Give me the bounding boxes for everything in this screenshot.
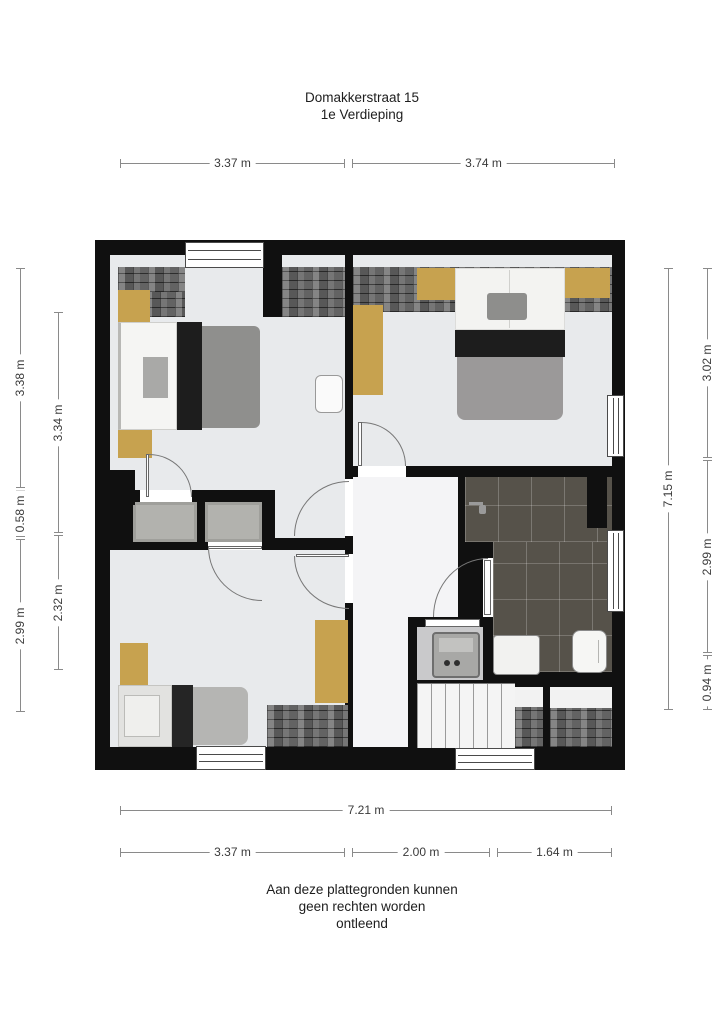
dim-left-outer-3: 2.99 m [20,539,21,712]
landing-strip-2 [550,687,612,708]
wall-chunk-bathroom-ne [587,470,607,528]
wall-chunk-west-mid [110,470,135,505]
dim-right-outer-3: 0.94 m [707,655,708,710]
washbasin [493,635,540,675]
landing-strip-1 [515,687,543,707]
bedroom-1-bed-duvet [202,326,260,428]
stairwell-window [455,748,535,770]
bedroom-3-wardrobe-east [315,620,348,703]
bedroom-2-wardrobe-north-left [417,268,455,300]
bedroom-1-brick-nw2 [145,292,185,317]
wall-chunk-bedroom1-ne [263,240,282,317]
knee-wall-brick-1 [515,707,543,747]
bedroom-1-bed-darkband [177,322,202,430]
knee-wall-brick-2 [550,708,612,747]
washing-machine-panel [439,638,473,652]
bedroom-2-door-opening [358,466,406,477]
dim-top-left: 3.37 m [120,163,345,164]
built-in-cupboard-right [205,502,262,542]
toilet [572,630,607,673]
bedroom-2-window [607,395,624,457]
hall-floor-lower [353,617,408,747]
toilet-seat-line [598,640,599,663]
dim-left-outer-1: 3.38 m [20,268,21,488]
bedroom-2-bed-duvet [457,357,563,420]
floorplan-drawing [95,240,625,770]
disclaimer-line-1: Aan deze plattegronden kunnen [0,881,724,898]
bedroom-3-wardrobe-west [120,643,148,685]
bedroom-1-window [185,242,264,268]
bedroom-1-brick-ne [282,267,345,317]
bathroom-window [607,530,624,612]
page-title-address: Domakkerstraat 15 [0,89,724,106]
staircase [417,683,515,748]
bedroom-2-wardrobe-north-right [562,268,610,298]
dim-bottom-1: 3.37 m [120,852,345,853]
bedroom-1-radiator [315,375,343,413]
dim-right-outer-1: 3.02 m [707,268,708,458]
bedroom-1-bed-blanket [143,357,168,398]
bedroom-1-brick-nw [118,267,185,292]
bedroom-2-gray-pillow [487,293,527,320]
dim-left-inner-1: 3.34 m [58,312,59,533]
dim-left-outer-2: 0.58 m [20,490,21,537]
disclaimer-line-2: geen rechten worden [0,898,724,915]
shower-head-icon [479,505,486,514]
dim-right-total: 7.15 m [668,268,669,710]
floorplan-page: Domakkerstraat 15 1e Verdieping 3.37 m 3… [0,0,724,1024]
built-in-cupboard-left [133,502,197,542]
dim-left-inner-2: 2.32 m [58,535,59,670]
bedroom-2-bed-darkband [455,330,565,357]
bedroom-3-bed-blanket [193,687,248,745]
bedroom-3-bed-darkband [172,685,193,747]
disclaimer-line-3: ontleend [0,915,724,932]
washing-machine-dot-2 [454,660,460,666]
page-title-floor: 1e Verdieping [0,106,724,123]
dim-bottom-total: 7.21 m [120,810,612,811]
dim-top-right: 3.74 m [352,163,615,164]
bedroom-3-window [196,746,266,770]
dim-bottom-3: 1.64 m [497,852,612,853]
dim-right-outer-2: 2.99 m [707,460,708,653]
bedroom-3-bed-pillow [124,695,160,737]
bedroom-1-wardrobe-top [118,290,150,322]
bedroom-3-brick-south [267,705,348,747]
washing-closet-hatch [425,619,480,627]
dim-bottom-2: 2.00 m [352,852,490,853]
bedroom-2-wardrobe-west [353,305,383,395]
washing-machine-dot-1 [444,660,450,666]
